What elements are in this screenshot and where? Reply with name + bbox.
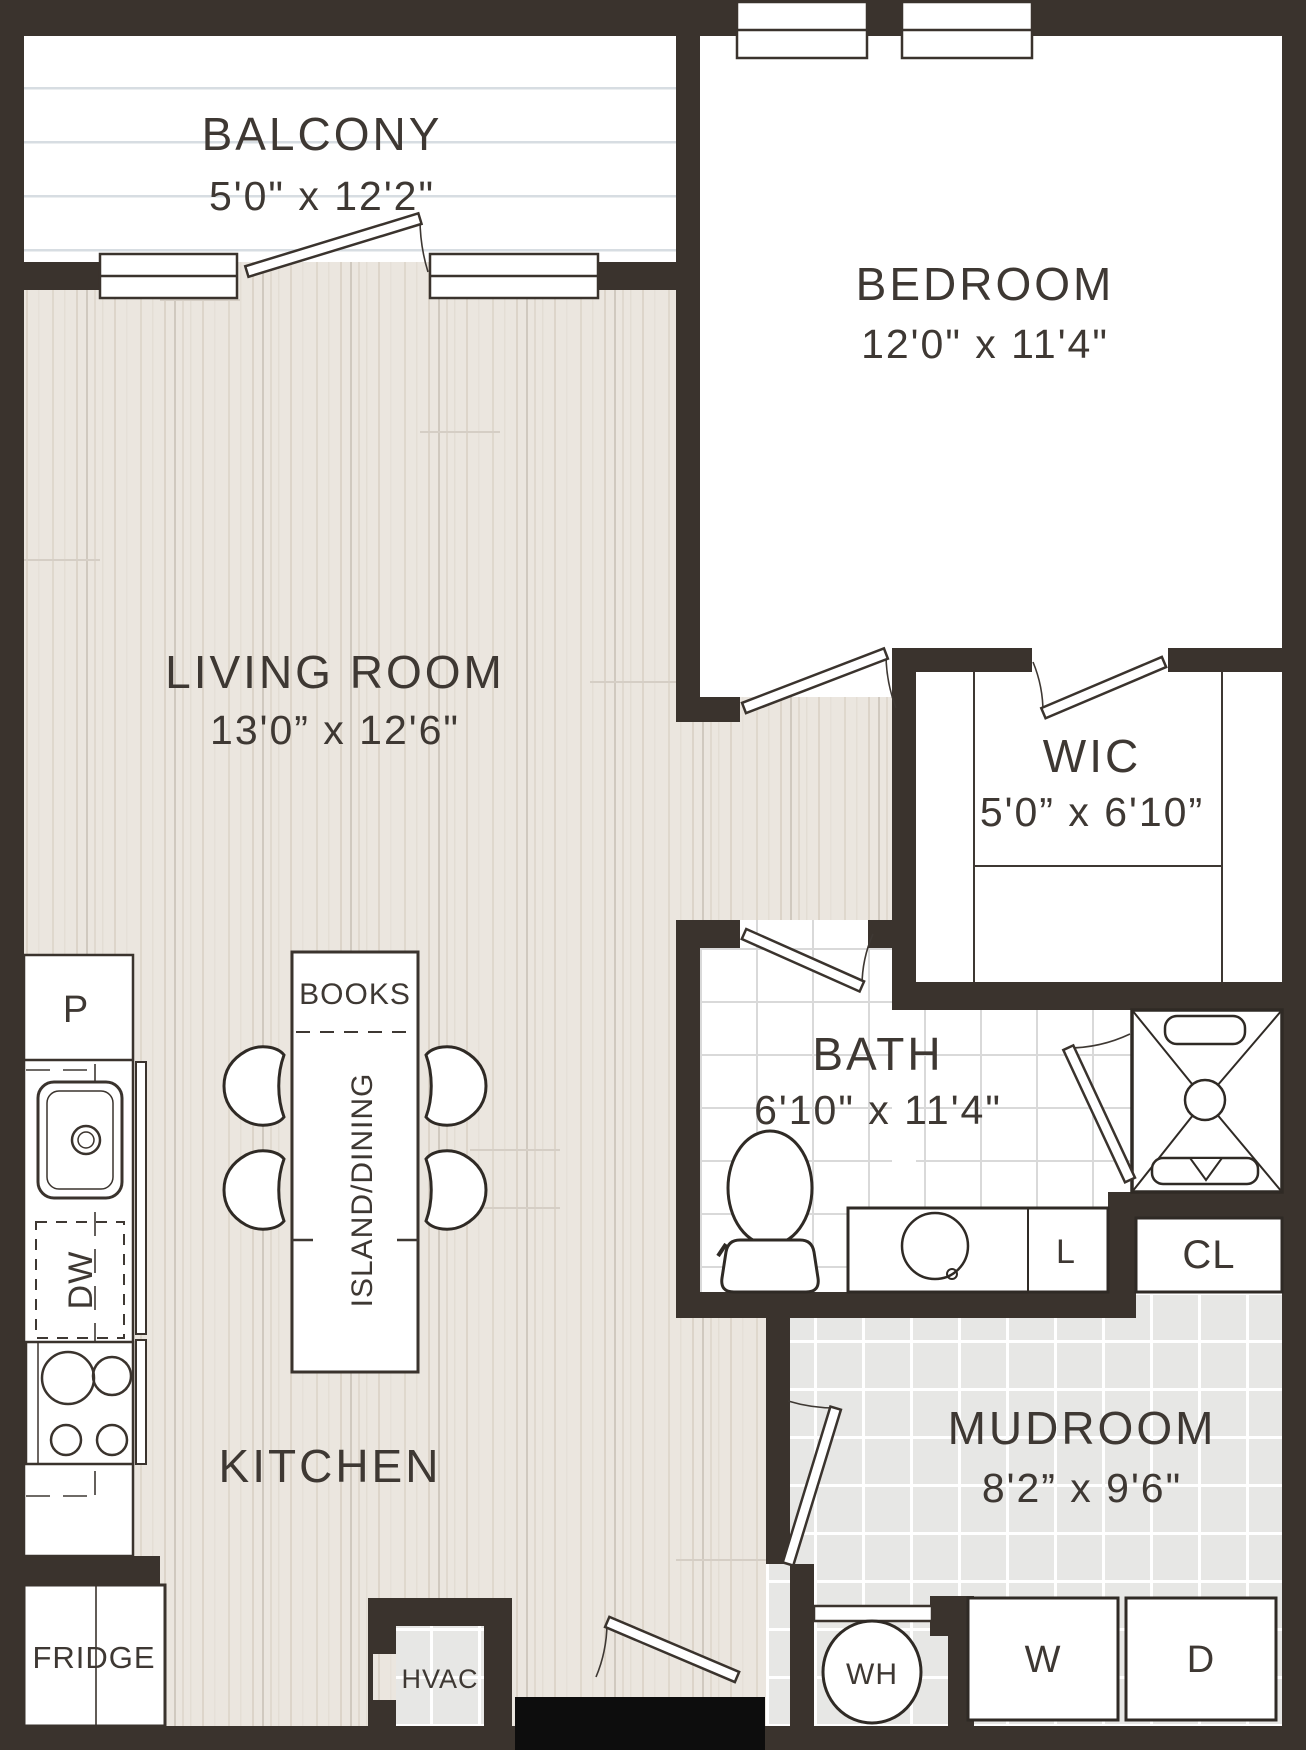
- washer: W: [968, 1598, 1118, 1720]
- wall-bath-bottom: [676, 1292, 1108, 1318]
- wh-bifold-door: [814, 1606, 932, 1621]
- pantry-label: P: [63, 989, 89, 1031]
- wall-top: [0, 0, 1306, 36]
- wic-door: [1033, 657, 1166, 718]
- wall-kitchen-stub: [24, 1556, 160, 1586]
- water-heater-label: WH: [846, 1658, 898, 1691]
- wall-balcony-b: [598, 262, 676, 290]
- balcony-window-1: [100, 254, 237, 298]
- wall-right: [1282, 0, 1306, 1750]
- hall-floor: [676, 722, 892, 948]
- island: BOOKS ISLAND/DINING: [292, 952, 418, 1372]
- wall-shower-bottom: [1108, 1192, 1282, 1218]
- bedroom-window-1: [737, 2, 867, 58]
- wall-bedroom-left: [676, 36, 700, 722]
- mudroom-dims: 8'2” x 9'6": [982, 1465, 1182, 1511]
- kitchen-sink: [38, 1082, 122, 1198]
- balcony-dims: 5'0" x 12'2": [209, 173, 435, 219]
- dishwasher-label: DW: [62, 1251, 100, 1310]
- entry-threshold: [515, 1697, 765, 1750]
- wall-bedroom-bottom-a: [676, 697, 740, 722]
- wall-wic-top-a: [892, 648, 1032, 672]
- wall-hvac-left-line: [368, 1652, 373, 1702]
- hall-closet: CL: [1136, 1218, 1282, 1292]
- wall-whcloset-left: [790, 1564, 814, 1726]
- wall-hvac-left-a: [368, 1598, 396, 1654]
- washer-label: W: [1025, 1639, 1062, 1681]
- bedroom-dims: 12'0" x 11'4": [861, 321, 1109, 367]
- dryer: D: [1126, 1598, 1276, 1720]
- floor-plan-canvas: DW P FRIDGE BOOKS ISLAND/DINING: [0, 0, 1306, 1750]
- wic-label: WIC: [1043, 730, 1141, 782]
- wic-dims: 5'0” x 6'10”: [980, 789, 1204, 835]
- mudroom-label: MUDROOM: [948, 1402, 1217, 1454]
- bedroom-window-2: [902, 2, 1032, 58]
- stove: [26, 1342, 133, 1464]
- wall-wic-left: [892, 648, 916, 1010]
- books-label: BOOKS: [299, 978, 411, 1011]
- living-room-dims: 13'0” x 12'6": [210, 707, 460, 753]
- kitchen-label: KITCHEN: [219, 1440, 442, 1492]
- wall-wic-bottom: [892, 982, 1282, 1010]
- floor-plan: DW P FRIDGE BOOKS ISLAND/DINING: [0, 0, 1306, 1750]
- wall-balcony-a: [24, 262, 100, 290]
- wall-bath-top-a: [700, 920, 740, 948]
- fridge: FRIDGE: [24, 1585, 165, 1726]
- balcony-floor: [24, 36, 676, 290]
- wall-wic-top-b: [1168, 648, 1282, 672]
- closet-label: CL: [1182, 1233, 1235, 1277]
- wall-mudroom-left: [766, 1318, 790, 1564]
- vanity: L: [848, 1208, 1108, 1292]
- counter-edge-b: [136, 1340, 146, 1464]
- fridge-label: FRIDGE: [32, 1640, 155, 1675]
- island-dining-label: ISLAND/DINING: [346, 1073, 379, 1308]
- wall-bath-left: [676, 920, 700, 1318]
- balcony-window-2: [430, 254, 598, 298]
- bedroom-label: BEDROOM: [856, 258, 1115, 310]
- counter-edge-a: [136, 1062, 146, 1334]
- bath-label: BATH: [812, 1028, 943, 1080]
- shower-handle-top: [1165, 1016, 1245, 1044]
- wall-left: [0, 0, 24, 1750]
- wall-hvac-right: [484, 1598, 512, 1726]
- dryer-label: D: [1187, 1639, 1215, 1681]
- linen-label: L: [1056, 1233, 1076, 1271]
- living-room-label: LIVING ROOM: [165, 646, 505, 698]
- hvac-label: HVAC: [401, 1664, 478, 1694]
- shower-drain: [1185, 1080, 1225, 1120]
- bath-dims: 6'10" x 11'4": [754, 1087, 1002, 1133]
- kitchen-counter: DW P: [24, 955, 146, 1556]
- wall-bath-top-b: [868, 920, 916, 948]
- wall-hvac-left-b: [368, 1700, 396, 1726]
- balcony-label: BALCONY: [202, 108, 443, 160]
